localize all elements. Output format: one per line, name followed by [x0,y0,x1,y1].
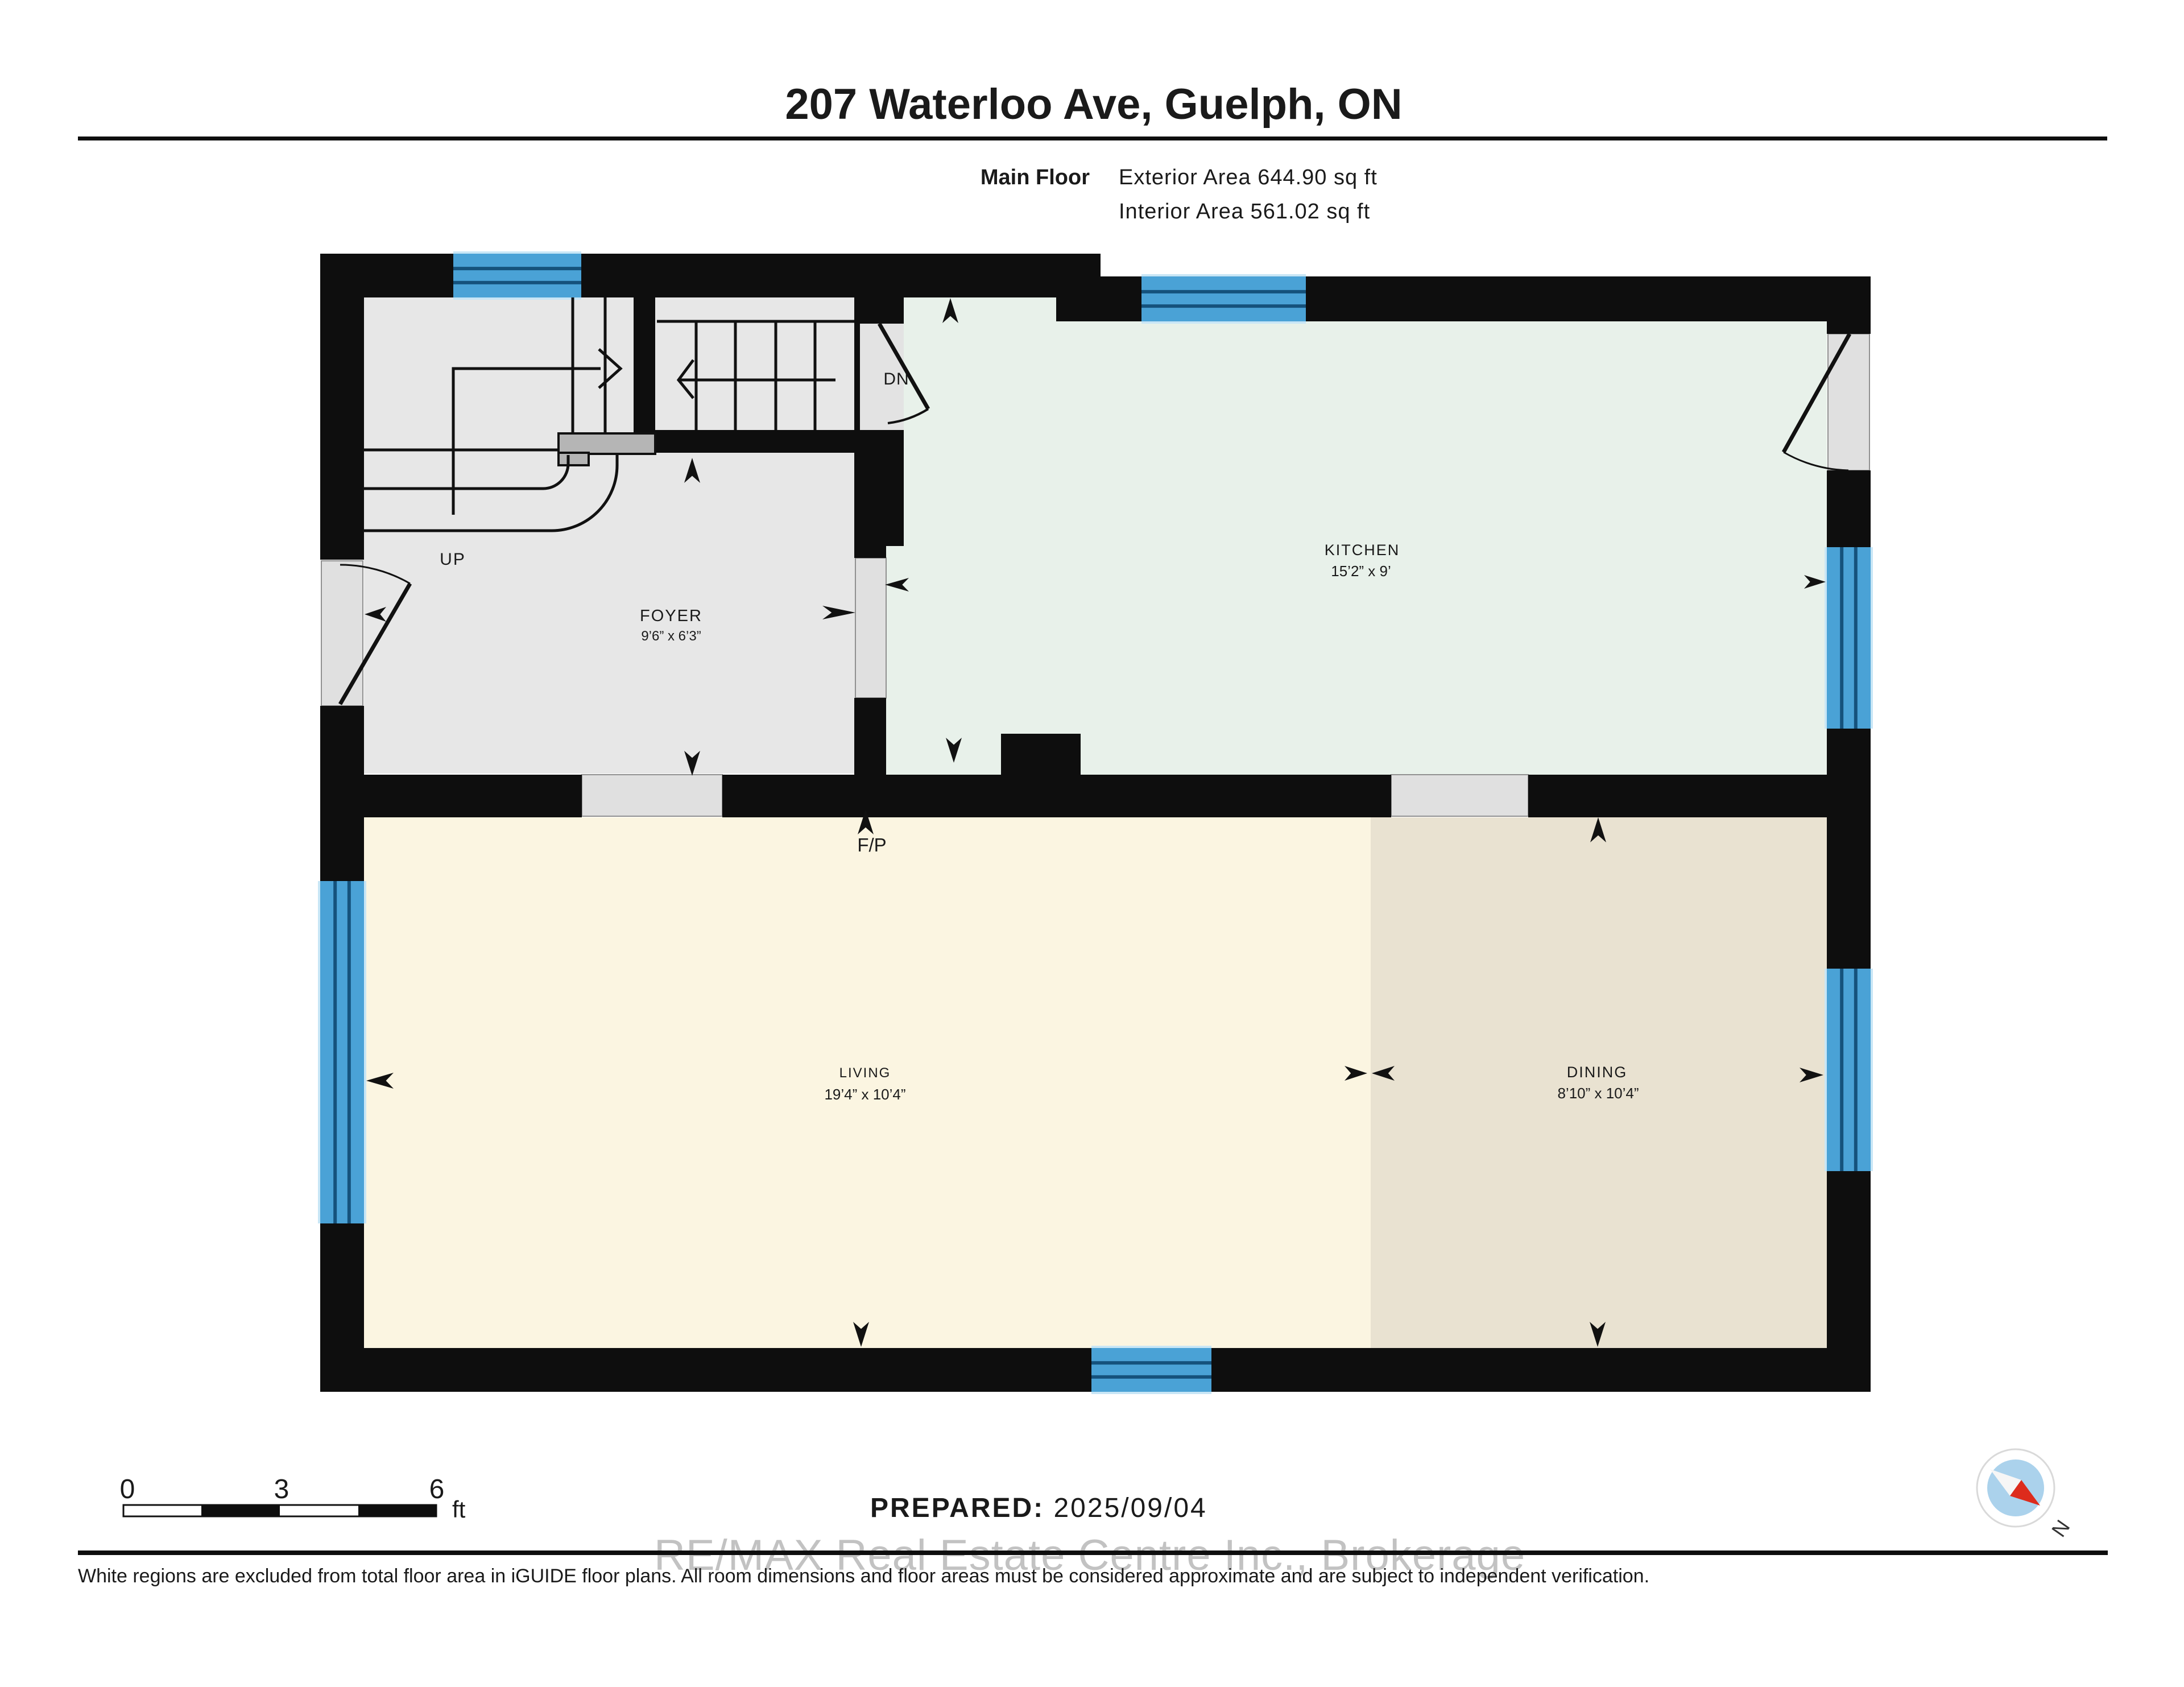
svg-text:DINING: DINING [1567,1064,1628,1081]
svg-text:8’10” x 10’4”: 8’10” x 10’4” [1557,1085,1639,1102]
svg-text:Main Floor: Main Floor [981,166,1090,189]
svg-text:KITCHEN: KITCHEN [1325,541,1400,559]
svg-text:White regions are excluded fro: White regions are excluded from total fl… [78,1565,1649,1587]
svg-text:Exterior Area 644.90 sq ft: Exterior Area 644.90 sq ft [1119,166,1378,189]
svg-text:6: 6 [429,1474,445,1504]
svg-text:PREPARED: 2025/09/04: PREPARED: 2025/09/04 [870,1493,1207,1523]
svg-text:Interior Area 561.02 sq ft: Interior Area 561.02 sq ft [1119,200,1370,224]
svg-text:15’2” x 9’: 15’2” x 9’ [1331,563,1391,580]
svg-text:3: 3 [274,1474,289,1504]
svg-text:LIVING: LIVING [839,1065,891,1081]
svg-text:F/P: F/P [857,834,886,855]
svg-text:9’6” x 6’3”: 9’6” x 6’3” [641,629,701,644]
svg-text:0: 0 [120,1474,135,1504]
svg-text:UP: UP [440,550,466,569]
svg-text:207 Waterloo Ave, Guelph, ON: 207 Waterloo Ave, Guelph, ON [785,80,1402,129]
svg-text:FOYER: FOYER [640,607,702,625]
svg-text:19’4” x 10’4”: 19’4” x 10’4” [824,1086,905,1103]
svg-text:ft: ft [452,1496,466,1523]
